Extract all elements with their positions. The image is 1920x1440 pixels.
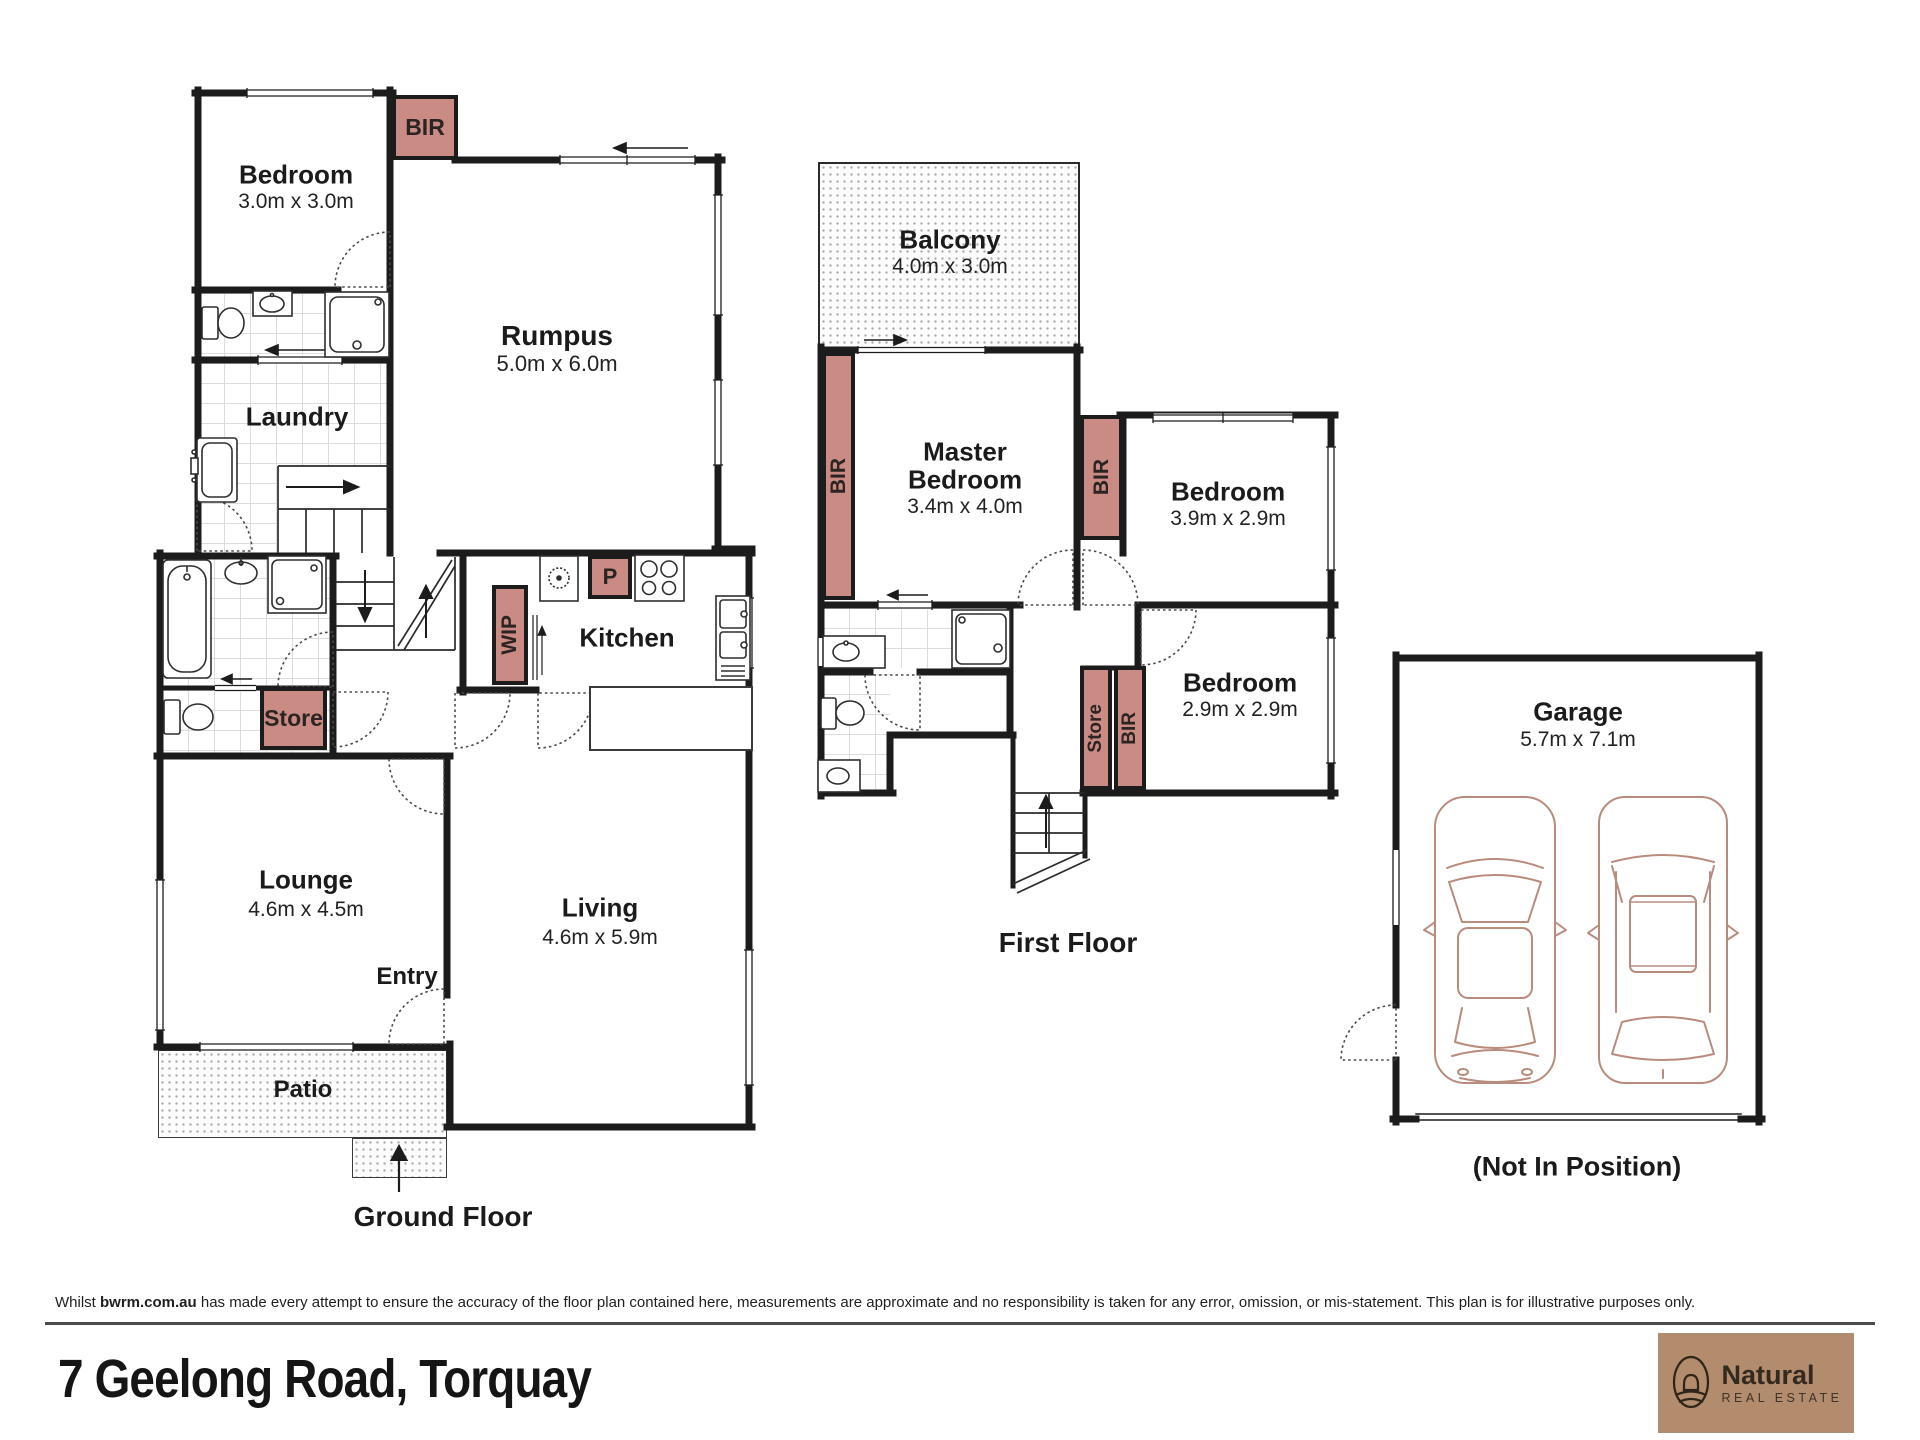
bir-label: BIR xyxy=(827,458,851,494)
sink-icon xyxy=(225,557,257,584)
disclaimer-prefix: Whilst xyxy=(55,1294,100,1311)
pantry: P xyxy=(588,555,632,599)
living-name: Living xyxy=(562,893,639,924)
master-bir-closet: BIR xyxy=(822,352,855,600)
garage-dims: 5.7m x 7.1m xyxy=(1520,728,1636,752)
bathroom1-fixtures xyxy=(202,291,389,357)
toilet-icon xyxy=(821,698,864,729)
entry-door-arc xyxy=(389,989,444,1044)
sink-icon xyxy=(253,291,292,316)
agency-logo: Natural REAL ESTATE xyxy=(1658,1333,1854,1433)
agency-logo-icon xyxy=(1670,1352,1712,1414)
store-closet: Store xyxy=(260,687,327,750)
oven-icon xyxy=(540,556,578,601)
lounge-dims: 4.6m x 4.5m xyxy=(248,898,364,922)
stairs xyxy=(278,466,1090,893)
rumpus-name: Rumpus xyxy=(501,320,613,352)
bedroom2-name: Bedroom xyxy=(1171,477,1285,508)
floorplan-page: BIR WIP P Store BIR BIR Store BIR Bedroo… xyxy=(0,0,1920,1440)
gf-upper-stairs xyxy=(278,466,390,553)
garage-cars xyxy=(1424,797,1738,1083)
wip-door-arc xyxy=(538,693,593,748)
sink-icon xyxy=(818,760,860,792)
car-icon xyxy=(1588,797,1738,1083)
laundry-name: Laundry xyxy=(246,402,349,433)
toilet-icon xyxy=(164,700,213,734)
kitchen-sink-icon xyxy=(716,596,750,680)
kitchen-bench xyxy=(590,687,752,750)
ff-wc-door-arc xyxy=(865,675,920,730)
pantry-label: P xyxy=(603,564,618,590)
disclaimer-body: has made every attempt to ensure the acc… xyxy=(197,1294,1696,1311)
bedroom3-door-arc xyxy=(1141,610,1196,665)
ff-store-closet: Store xyxy=(1080,666,1112,790)
cooktop-icon xyxy=(635,555,684,601)
disclaimer-text: Whilst bwrm.com.au has made every attemp… xyxy=(55,1294,1865,1311)
bir-closet: BIR xyxy=(392,95,458,160)
bedroom3-bir-closet: BIR xyxy=(1114,666,1146,790)
hall-living-door-arc xyxy=(455,693,510,748)
laundry-tub-icon xyxy=(191,438,237,502)
balcony-dims: 4.0m x 3.0m xyxy=(892,255,1008,279)
bedroom1-name: Bedroom xyxy=(239,160,353,191)
bedroom2-door-arc xyxy=(1083,550,1138,605)
ground-floor-label: Ground Floor xyxy=(354,1201,533,1233)
bathtub-icon xyxy=(163,560,211,678)
living-dims: 4.6m x 5.9m xyxy=(542,926,658,950)
lounge-name: Lounge xyxy=(259,865,353,896)
bir-label: BIR xyxy=(1119,712,1141,745)
page-title: 7 Geelong Road, Torquay xyxy=(58,1348,591,1410)
garage-door-arc xyxy=(1341,1005,1396,1060)
shower-icon xyxy=(952,610,1010,668)
wip-pantry: WIP xyxy=(492,585,528,685)
lounge-door-arc xyxy=(389,759,444,814)
footer-divider xyxy=(45,1322,1875,1325)
bedroom3-name: Bedroom xyxy=(1183,668,1297,699)
store-door-arc xyxy=(333,692,388,747)
balcony-name: Balcony xyxy=(899,225,1000,256)
kitchen-name: Kitchen xyxy=(579,623,674,654)
shower-icon xyxy=(268,556,326,613)
bedroom1-door-arc xyxy=(335,232,390,287)
master-door-arc xyxy=(1018,550,1073,605)
bathroom2-door-arc xyxy=(278,632,333,687)
laundry-door-arc xyxy=(197,496,252,551)
windows xyxy=(155,88,1401,1085)
car-icon xyxy=(1424,797,1566,1083)
entry-name: Entry xyxy=(376,963,437,991)
store-label: Store xyxy=(1085,704,1107,753)
wip-label: WIP xyxy=(498,615,522,655)
first-floor-walls xyxy=(821,347,1335,886)
agency-logo-wordmark: Natural REAL ESTATE xyxy=(1722,1361,1843,1405)
bedroom3-dims: 2.9m x 2.9m xyxy=(1182,698,1298,722)
bedroom2-bir-closet: BIR xyxy=(1080,415,1123,540)
bir-label: BIR xyxy=(405,114,445,141)
sink-icon xyxy=(823,636,885,668)
shower-icon xyxy=(325,292,389,357)
store-label: Store xyxy=(264,705,323,732)
master-bedroom-name-line1: Master xyxy=(923,437,1007,468)
gf-lower-stairs xyxy=(336,557,455,650)
bedroom2-dims: 3.9m x 2.9m xyxy=(1170,507,1286,531)
patio-name: Patio xyxy=(274,1076,333,1104)
disclaimer-source: bwrm.com.au xyxy=(100,1294,197,1311)
toilet-icon xyxy=(202,307,244,339)
master-bedroom-name-line2: Bedroom xyxy=(908,465,1022,496)
bir-label: BIR xyxy=(1090,459,1114,495)
garage-note-label: (Not In Position) xyxy=(1473,1152,1681,1183)
bedroom1-dims: 3.0m x 3.0m xyxy=(238,190,354,214)
agency-tagline: REAL ESTATE xyxy=(1722,1392,1843,1405)
first-floor-label: First Floor xyxy=(999,927,1137,959)
master-bedroom-dims: 3.4m x 4.0m xyxy=(907,495,1023,519)
rumpus-dims: 5.0m x 6.0m xyxy=(496,351,617,377)
ff-bathroom-fixtures xyxy=(818,610,1010,792)
garage-name: Garage xyxy=(1533,697,1623,728)
agency-name: Natural xyxy=(1722,1361,1843,1389)
